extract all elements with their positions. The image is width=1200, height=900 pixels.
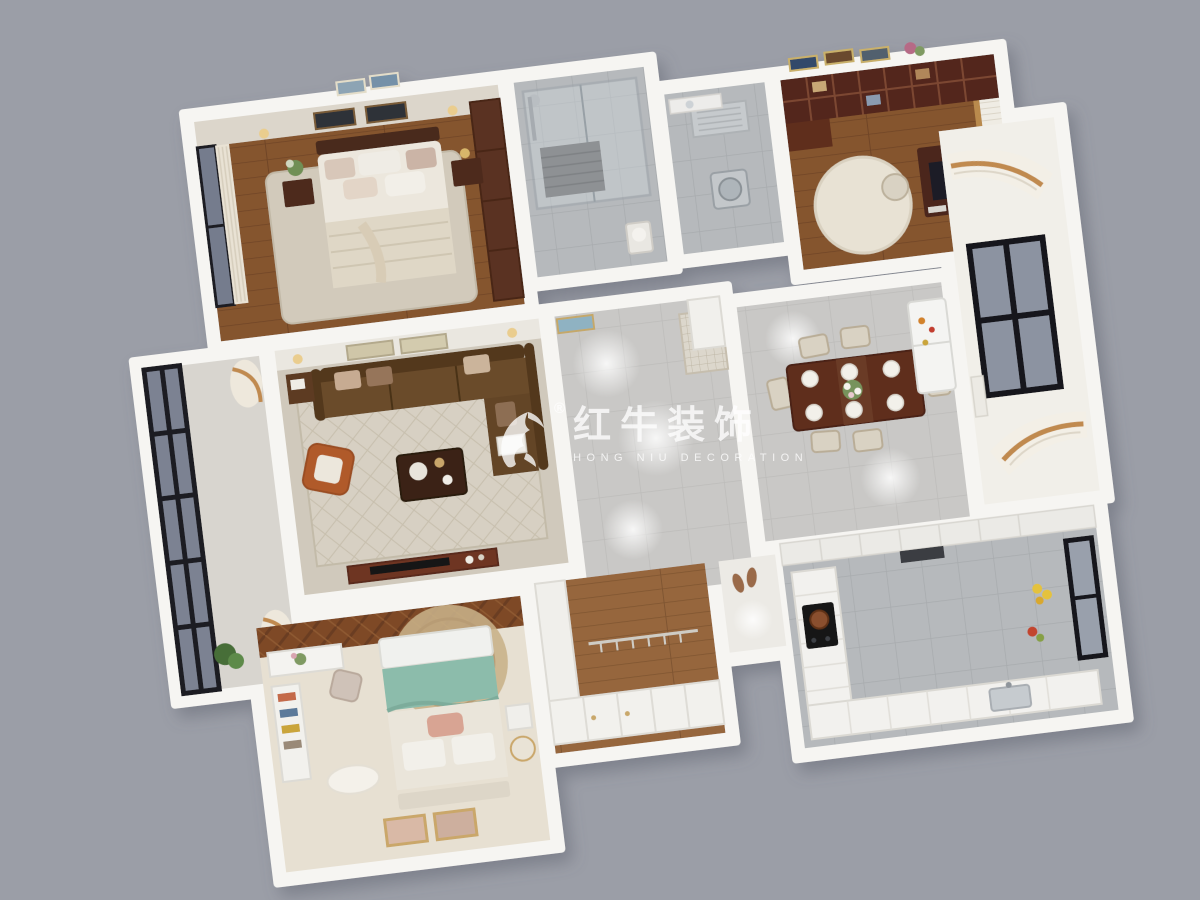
- pillow: [342, 176, 378, 200]
- pillow: [401, 738, 446, 771]
- room-master-bedroom: [194, 85, 525, 342]
- bed: [315, 126, 456, 288]
- room-kitchen: [780, 505, 1119, 748]
- nightstand: [282, 178, 315, 207]
- room-walk-in-closet: [535, 563, 726, 754]
- room-second-bedroom: [256, 596, 550, 873]
- pillow: [334, 370, 362, 391]
- sink: [989, 684, 1031, 711]
- shoe-cabinet: [687, 296, 725, 350]
- magazine: [497, 434, 527, 455]
- small-chair: [329, 669, 363, 703]
- room-second-bathroom: [664, 82, 784, 254]
- wall-art: [365, 102, 407, 123]
- pillow: [365, 366, 393, 387]
- floorplan-render: ® 红牛装饰 HONG NIU DECORATION: [0, 0, 1200, 900]
- room-shower-bathroom: [514, 67, 668, 278]
- pan: [809, 610, 829, 630]
- wall-art: [557, 315, 594, 333]
- pillow: [405, 147, 437, 171]
- room-living: [275, 319, 569, 596]
- floor-art: [385, 815, 428, 846]
- pillow: [324, 157, 356, 181]
- accent-armchair: [301, 442, 355, 496]
- coffee-table: [396, 448, 467, 502]
- nightstand: [451, 157, 484, 186]
- cabinet: [786, 119, 833, 152]
- wall-art: [314, 108, 356, 129]
- room-rear-corridor: [718, 554, 786, 652]
- pillow: [451, 732, 496, 765]
- pillow: [463, 354, 491, 375]
- bay-window: [969, 237, 1061, 395]
- room-dining: [737, 282, 972, 542]
- nightstand: [506, 703, 533, 730]
- pink-pillow: [426, 712, 464, 738]
- shower-floor: [540, 141, 606, 198]
- book: [290, 379, 305, 391]
- pillow: [495, 401, 518, 427]
- floorplan-canvas: [0, 0, 1200, 900]
- room-hallway: [554, 296, 754, 600]
- floor-art: [434, 809, 477, 840]
